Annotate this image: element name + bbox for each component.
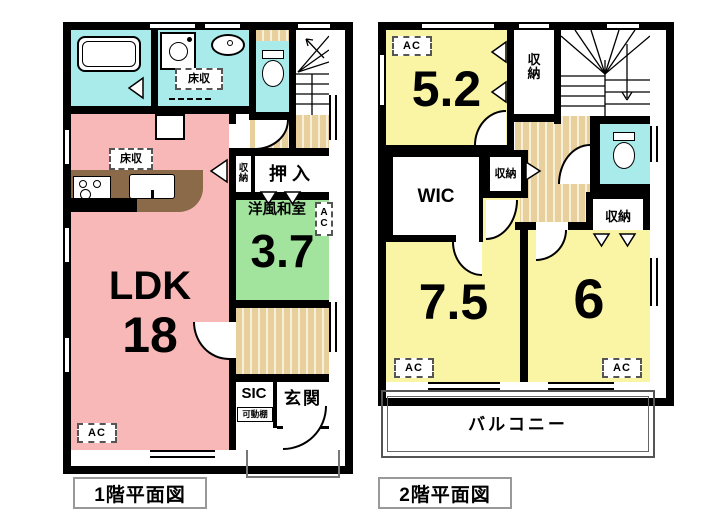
door-triangle-icon [211, 160, 227, 182]
cupboard-icon [155, 114, 185, 140]
window-icon [298, 22, 330, 30]
wall [590, 184, 650, 192]
washitsu-area-label: 3.7 [236, 220, 329, 282]
window-icon [63, 130, 71, 164]
window-icon [205, 22, 240, 30]
wall [289, 30, 296, 148]
wall [151, 30, 158, 114]
wall [229, 156, 236, 322]
washitsu-label: 洋風和室 [238, 202, 316, 218]
closet-a-label: 収納 [514, 36, 554, 98]
window-icon [63, 228, 71, 262]
window-icon [428, 382, 500, 390]
wall [514, 114, 561, 122]
wic-label: WIC [393, 157, 479, 235]
window-icon [548, 382, 614, 390]
wall [554, 30, 561, 124]
balcony: バルコニー [381, 390, 655, 458]
floor-storage-label: 床収 [109, 148, 153, 170]
wall [590, 124, 600, 192]
closet-label: 収納 [238, 164, 249, 185]
window-icon [422, 22, 494, 30]
bathtub-icon [77, 36, 141, 72]
window-icon [329, 95, 337, 140]
counter-edge [71, 198, 137, 212]
sic-room: SIC [236, 383, 272, 403]
ldk-label: LDK 18 [71, 248, 229, 378]
door-triangle-icon [526, 162, 540, 180]
porch [246, 450, 340, 478]
window-icon [519, 22, 549, 30]
floor-storage-label: 床収 [175, 68, 223, 90]
ac-label: AC [602, 358, 642, 378]
window-icon [329, 302, 337, 352]
wall [229, 114, 236, 124]
toilet-icon [612, 132, 636, 172]
wic-door-gap [456, 234, 479, 242]
entrance-room: 玄関 [277, 386, 329, 410]
wall [229, 148, 329, 156]
toilet-shelf [256, 30, 289, 41]
floor2-plan: AC 5.2 収納 WIC 収納 収納 7.5 6 AC AC [378, 22, 674, 406]
closet-c-label: 収納 [593, 199, 643, 233]
window-icon [650, 126, 658, 162]
closet-b-label: 収納 [490, 157, 521, 191]
wall [386, 145, 514, 153]
door-triangle-icon [129, 78, 143, 98]
wall [515, 222, 536, 230]
floorplan-page: 床収 床収 LDK 18 収納 押入 洋風和室 AC 3.7 SIC 可動棚 玄… [0, 0, 705, 525]
bedroom-52-area-label: 5.2 [386, 56, 507, 122]
staircase-icon [561, 30, 650, 116]
hallway [296, 115, 329, 148]
caption-floor1: 1階平面図 [73, 477, 207, 509]
window-icon [150, 450, 215, 458]
wall [249, 30, 256, 120]
closet-room: 収納 [236, 156, 251, 192]
bathtub-inner-line [82, 41, 136, 67]
washbasin-icon [211, 34, 245, 56]
window-icon [63, 338, 71, 372]
door-arc-icon [283, 406, 327, 450]
window-icon [650, 258, 658, 306]
hallway [236, 308, 329, 374]
staircase-icon [296, 30, 329, 115]
window-icon [150, 22, 195, 30]
wall [590, 116, 650, 124]
door-triangle-icon [594, 234, 609, 246]
wall [229, 192, 329, 200]
wall [71, 106, 249, 114]
wall [249, 112, 296, 120]
wall [229, 374, 329, 382]
window-icon [378, 55, 386, 105]
step-dashed-line [169, 98, 211, 100]
ac-label: AC [394, 358, 434, 378]
door-triangle-icon [620, 234, 635, 246]
washing-machine-icon [160, 32, 196, 70]
wall [520, 222, 528, 382]
area-label: 18 [122, 310, 178, 360]
window-icon [607, 22, 639, 30]
wall [229, 358, 236, 450]
balcony-label: バルコニー [383, 392, 653, 456]
floor1-plan: 床収 床収 LDK 18 収納 押入 洋風和室 AC 3.7 SIC 可動棚 玄… [63, 22, 353, 474]
ac-label: AC [77, 423, 117, 443]
caption-floor2: 2階平面図 [378, 477, 512, 509]
wall [507, 30, 514, 145]
room-label: LDK [109, 266, 191, 306]
wall [568, 222, 590, 230]
wall [229, 300, 329, 308]
bedroom-6-area-label: 6 [528, 260, 650, 338]
toilet-icon [261, 50, 285, 90]
bedroom-75-area-label: 7.5 [386, 268, 521, 336]
ac-label: AC [392, 36, 432, 56]
kitchen-sink-icon [129, 174, 175, 199]
movable-shelf-label: 可動棚 [237, 407, 273, 422]
oshiire-closet: 押入 [255, 156, 329, 192]
